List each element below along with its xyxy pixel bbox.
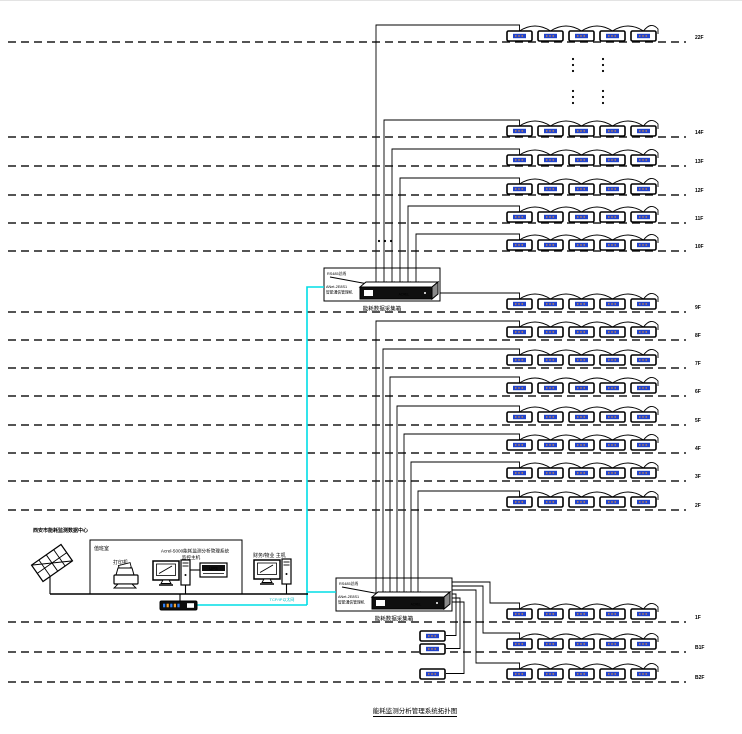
energy-meter (569, 126, 594, 136)
energy-meter (538, 155, 563, 165)
energy-meter (600, 327, 625, 337)
energy-meter (631, 212, 656, 222)
floor-label: 4F (695, 446, 701, 452)
energy-meter (631, 184, 656, 194)
rs485-bus-label: RS485总线 (327, 271, 346, 276)
floor-label: 10F (695, 244, 704, 250)
energy-meter (569, 299, 594, 309)
energy-meter (600, 609, 625, 619)
energy-meter (631, 31, 656, 41)
floor-label: 8F (695, 333, 701, 339)
duty-room-label: 值班室 (94, 545, 109, 552)
energy-meter (631, 669, 656, 679)
energy-meter (569, 355, 594, 365)
ethernet-label: TCP/IP以太网 (270, 596, 295, 602)
data-center-label: 西安市能耗监测数据中心 (33, 527, 88, 534)
energy-meter (631, 639, 656, 649)
energy-meter (420, 631, 445, 641)
floor-zone: 13F (8, 149, 704, 268)
energy-meter (538, 639, 563, 649)
energy-meter (507, 126, 532, 136)
energy-meter (507, 669, 532, 679)
energy-meter (631, 299, 656, 309)
energy-meter (600, 639, 625, 649)
energy-meter (507, 240, 532, 250)
energy-meter (538, 383, 563, 393)
energy-meter (507, 440, 532, 450)
ethernet-line (307, 287, 324, 605)
meter-bus-riser (411, 462, 658, 578)
energy-meter (420, 669, 445, 679)
energy-meter (538, 669, 563, 679)
ups-unit: UPS (190, 563, 227, 577)
energy-meter (569, 327, 594, 337)
energy-meter (507, 468, 532, 478)
energy-meter (631, 497, 656, 507)
energy-meter (538, 31, 563, 41)
device-brand: ACREL (399, 293, 410, 297)
energy-meter (569, 212, 594, 222)
energy-meter (600, 497, 625, 507)
control-room: 西安市能耗监测数据中心 值班室 打印机 Acrel-5000能耗监测分析 (32, 527, 308, 610)
energy-meter (507, 497, 532, 507)
energy-meter (631, 126, 656, 136)
device-brand: ACREL (411, 603, 422, 607)
floor-zone: 22F (8, 25, 704, 268)
energy-meter (538, 497, 563, 507)
finance-host-pc-icon (254, 559, 291, 584)
energy-meter (631, 383, 656, 393)
energy-meter (507, 299, 532, 309)
antenna-tower-icon (32, 544, 73, 594)
energy-collection-box: RS485总线ANet-2E8S1智能通信管理机ACREL能耗数据采集箱 (324, 268, 440, 313)
gateway-name-label: 智能通信管理机 (326, 290, 353, 295)
meter-bus-riser (397, 406, 658, 578)
energy-meter (600, 31, 625, 41)
energy-meter (600, 184, 625, 194)
floor-label: B2F (695, 675, 704, 681)
energy-meter (600, 440, 625, 450)
energy-meter (569, 497, 594, 507)
energy-meter (538, 440, 563, 450)
energy-meter (600, 412, 625, 422)
energy-collection-box: RS485总线ANet-2E8S1智能通信管理机ACREL能耗数据采集箱 (336, 578, 452, 623)
energy-meter (507, 355, 532, 365)
gateway-model-label: ANet-2E8S1 (326, 285, 347, 289)
finance-host-label: 财务/物业 主机 (253, 552, 286, 559)
floor-label: 1F (695, 615, 701, 621)
energy-meter (569, 468, 594, 478)
energy-meter (631, 609, 656, 619)
energy-meter (507, 412, 532, 422)
energy-meter (600, 299, 625, 309)
energy-meter (538, 609, 563, 619)
floor-zone: 3F (8, 462, 701, 578)
energy-meter (538, 240, 563, 250)
energy-meter (507, 184, 532, 194)
printer-icon (114, 563, 138, 588)
energy-meter (538, 184, 563, 194)
energy-meter (600, 383, 625, 393)
floor-label: 7F (695, 361, 701, 367)
gateway-model-label: ANet-2E8S1 (338, 595, 359, 599)
energy-meter (569, 240, 594, 250)
floor-zone: 7F (8, 349, 701, 578)
energy-meter (600, 212, 625, 222)
energy-meter (569, 155, 594, 165)
floor-label: 2F (695, 503, 701, 509)
floor-label: 9F (695, 305, 701, 311)
energy-meter (507, 212, 532, 222)
title-text: 能耗监测分析管理系统拓扑图 (373, 706, 458, 715)
energy-meter (507, 383, 532, 393)
energy-meter (538, 212, 563, 222)
energy-meter (507, 609, 532, 619)
rs485-bus-label: RS485总线 (339, 581, 358, 586)
floor-label: 11F (695, 216, 703, 222)
floor-zone: 8F (8, 321, 701, 578)
energy-meter (538, 327, 563, 337)
energy-meter (600, 669, 625, 679)
energy-meter (569, 383, 594, 393)
energy-meter (538, 468, 563, 478)
floor-label: B1F (695, 645, 704, 651)
meter-bus-riser (376, 25, 658, 268)
energy-meter (631, 327, 656, 337)
energy-meter (631, 412, 656, 422)
topology-diagram: 22F14F13F12F11F10F9F8F7F6F5F4F3F2F1FB1FB… (0, 1, 742, 734)
floor-label: 3F (695, 474, 701, 480)
energy-meter (600, 355, 625, 365)
energy-meter (538, 412, 563, 422)
energy-meter (538, 355, 563, 365)
energy-meter (569, 609, 594, 619)
energy-meter (420, 644, 445, 654)
energy-meter (569, 184, 594, 194)
energy-meter (569, 639, 594, 649)
host-label-line1: Acrel-5000能耗监测分析管理系统 (161, 548, 230, 555)
monitoring-host-pc-icon (153, 560, 190, 585)
energy-meter (600, 240, 625, 250)
floor-label: 6F (695, 389, 701, 395)
gateway-name-label: 智能通信管理机 (338, 600, 365, 605)
floor-zone: 4F (8, 434, 701, 578)
energy-meter (631, 440, 656, 450)
energy-meter (631, 355, 656, 365)
energy-meter (569, 31, 594, 41)
energy-meter (507, 639, 532, 649)
energy-meter (569, 412, 594, 422)
diagram-canvas: 22F14F13F12F11F10F9F8F7F6F5F4F3F2F1FB1FB… (0, 0, 742, 734)
energy-meter (538, 126, 563, 136)
ups-label: UPS (209, 566, 218, 571)
energy-meter (631, 155, 656, 165)
energy-meter (631, 468, 656, 478)
energy-meter (631, 240, 656, 250)
floor-label: 12F (695, 188, 704, 194)
energy-meter (600, 155, 625, 165)
energy-meter (600, 468, 625, 478)
floor-zone: 11F (8, 206, 703, 268)
meter-branch (446, 602, 464, 674)
energy-meter (507, 155, 532, 165)
floor-zone: 10F (8, 234, 704, 268)
diagram-title: 能耗监测分析管理系统拓扑图 (373, 706, 458, 717)
floor-zone: 2F (8, 491, 701, 578)
floor-label: 14F (695, 130, 704, 136)
floor-label: 5F (695, 418, 701, 424)
energy-meter (538, 299, 563, 309)
energy-meter (569, 669, 594, 679)
collection-box-caption: 能耗数据采集箱 (363, 305, 402, 313)
energy-meter (507, 327, 532, 337)
energy-meter (507, 31, 532, 41)
energy-meter (569, 440, 594, 450)
floor-label: 22F (695, 35, 704, 41)
energy-meter (600, 126, 625, 136)
collection-box-caption: 能耗数据采集箱 (375, 615, 414, 623)
ethernet-switch (160, 601, 197, 610)
floor-label: 13F (695, 159, 704, 165)
